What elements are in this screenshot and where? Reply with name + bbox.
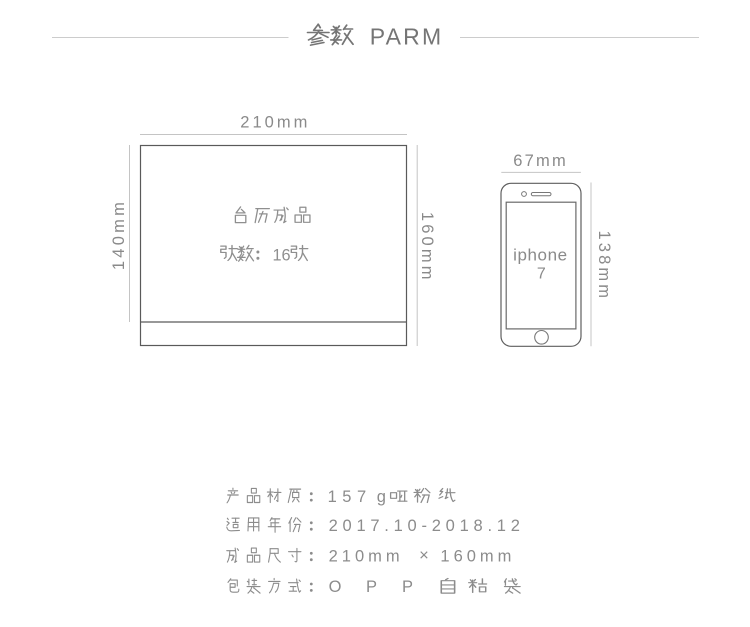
svg-text:160mm: 160mm [440, 547, 515, 565]
svg-text:138mm: 138mm [595, 231, 613, 302]
svg-text:210mm: 210mm [329, 547, 404, 565]
svg-text:g: g [377, 488, 386, 506]
svg-text:67mm: 67mm [513, 152, 568, 170]
svg-text:157: 157 [328, 488, 372, 506]
svg-text:2017.10-2018.12: 2017.10-2018.12 [329, 517, 525, 535]
svg-text:140mm: 140mm [110, 199, 128, 270]
svg-text:160mm: 160mm [418, 212, 436, 283]
svg-text:iphone: iphone [513, 245, 568, 264]
svg-text:210mm: 210mm [240, 114, 310, 132]
svg-text:PARM: PARM [370, 24, 444, 50]
svg-text:P: P [366, 578, 377, 596]
svg-text:7: 7 [537, 266, 546, 283]
svg-text:×: × [419, 546, 429, 564]
svg-text:16: 16 [273, 247, 291, 265]
svg-text:O: O [329, 578, 342, 596]
svg-text:P: P [402, 578, 413, 596]
